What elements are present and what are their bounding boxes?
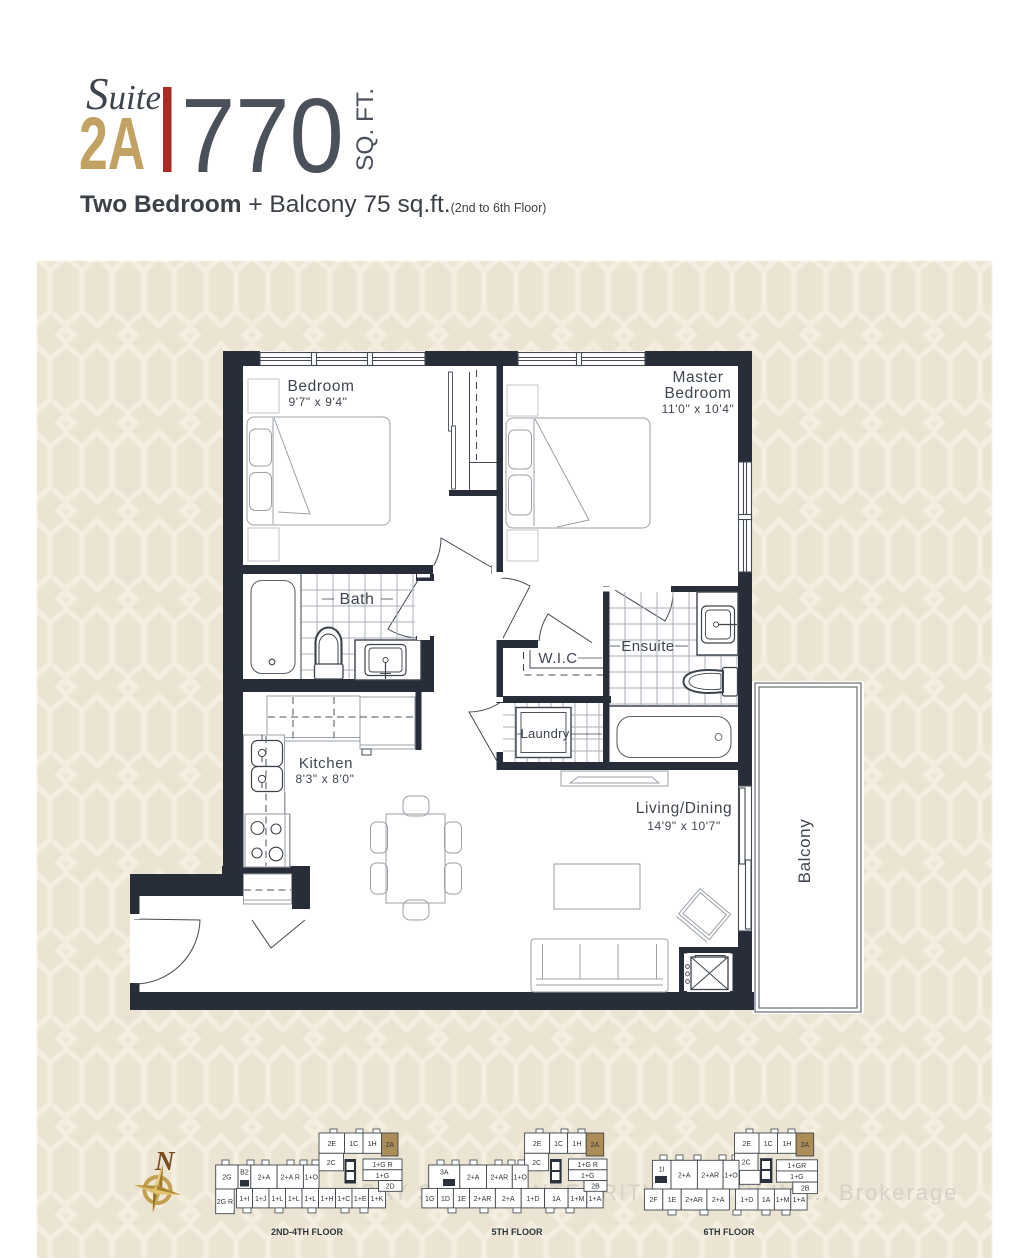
svg-text:2+A: 2+A [258,1175,271,1182]
svg-text:2C: 2C [532,1160,541,1167]
svg-text:1E: 1E [457,1196,466,1203]
svg-text:1C: 1C [554,1141,563,1148]
svg-text:1H: 1H [368,1141,377,1148]
svg-text:1+G: 1+G [376,1173,389,1180]
svg-text:W.I.C: W.I.C [538,650,577,667]
svg-text:2+A: 2+A [678,1172,691,1179]
svg-text:Ensuite: Ensuite [621,638,675,655]
svg-text:6TH FLOOR: 6TH FLOOR [704,1227,755,1237]
svg-text:1+GR: 1+GR [788,1163,806,1170]
svg-text:1+J: 1+J [255,1196,266,1203]
svg-text:Kitchen: Kitchen [299,755,353,772]
svg-text:1+M: 1+M [776,1197,790,1204]
svg-text:11'0" x 10'4": 11'0" x 10'4" [662,402,735,416]
svg-text:1+L: 1+L [304,1196,316,1203]
svg-text:1C: 1C [764,1141,773,1148]
svg-text:1+L: 1+L [271,1196,283,1203]
svg-text:Master: Master [673,369,724,386]
svg-text:2C: 2C [327,1160,336,1167]
svg-text:2E: 2E [327,1141,336,1148]
svg-text:1+O: 1+O [724,1172,738,1179]
svg-text:2D: 2D [386,1184,395,1191]
svg-text:2E: 2E [533,1141,542,1148]
svg-text:770: 770 [181,76,344,195]
svg-text:2A: 2A [385,1142,394,1149]
svg-text:2G: 2G [222,1175,231,1182]
svg-text:Living/Dining: Living/Dining [636,800,733,817]
svg-text:Bedroom: Bedroom [664,385,731,402]
svg-text:1+K: 1+K [371,1196,384,1203]
svg-text:1C: 1C [349,1141,358,1148]
svg-text:2+A R: 2+A R [281,1175,300,1182]
svg-text:2A: 2A [591,1142,600,1149]
svg-text:N: N [154,1146,176,1176]
svg-text:2F: 2F [650,1197,658,1204]
svg-text:1G: 1G [425,1196,434,1203]
svg-text:1H: 1H [572,1141,581,1148]
svg-text:1A: 1A [552,1196,561,1203]
svg-text:1+C: 1+C [337,1196,350,1203]
svg-text:2+A: 2+A [502,1196,515,1203]
svg-text:9'7" x 9'4": 9'7" x 9'4" [288,395,347,409]
svg-text:1+I: 1+I [240,1196,250,1203]
svg-text:8'3" x 8'0": 8'3" x 8'0" [295,772,354,786]
svg-text:2+A: 2+A [712,1197,725,1204]
svg-text:5TH FLOOR: 5TH FLOOR [492,1227,543,1237]
svg-text:Laundry: Laundry [520,726,569,741]
svg-text:B2: B2 [240,1170,249,1177]
svg-text:1+A: 1+A [589,1196,602,1203]
svg-text:1+O: 1+O [304,1175,318,1182]
svg-text:14'9" x 10'7": 14'9" x 10'7" [647,819,721,833]
svg-text:Bath: Bath [340,591,375,608]
svg-text:2+AR: 2+AR [474,1196,492,1203]
svg-text:1+D: 1+D [526,1196,539,1203]
svg-text:2B: 2B [801,1186,810,1193]
svg-text:2C: 2C [742,1160,751,1167]
svg-text:2+AR: 2+AR [685,1197,703,1204]
svg-text:2+AR: 2+AR [491,1175,509,1182]
svg-text:1+D: 1+D [740,1197,753,1204]
svg-text:1+A: 1+A [793,1197,806,1204]
svg-text:2A: 2A [801,1142,810,1149]
svg-text:2+AR: 2+AR [701,1172,719,1179]
svg-text:1+G: 1+G [581,1173,594,1180]
svg-text:1H: 1H [782,1141,791,1148]
svg-text:2B: 2B [591,1184,600,1191]
svg-text:2G R: 2G R [217,1199,233,1206]
svg-text:1+E: 1+E [354,1196,367,1203]
svg-text:1+G R: 1+G R [578,1162,598,1169]
svg-text:1D: 1D [441,1196,450,1203]
svg-text:1+G: 1+G [790,1174,803,1181]
svg-text:1E: 1E [668,1197,677,1204]
svg-text:1+G R: 1+G R [372,1162,392,1169]
svg-text:Balcony: Balcony [795,819,814,884]
svg-text:3A: 3A [440,1170,449,1177]
svg-text:Bedroom: Bedroom [287,378,354,395]
svg-text:2A: 2A [79,102,145,185]
svg-text:1+H: 1+H [320,1196,333,1203]
svg-text:1A: 1A [762,1197,771,1204]
svg-text:SQ. FT.: SQ. FT. [352,88,379,171]
svg-text:1+M: 1+M [571,1196,585,1203]
svg-text:1+O: 1+O [513,1175,527,1182]
svg-text:1I: 1I [659,1166,665,1173]
svg-text:2ND-4TH FLOOR: 2ND-4TH FLOOR [271,1227,344,1237]
svg-text:1+L: 1+L [288,1196,300,1203]
svg-text:2+A: 2+A [467,1175,480,1182]
svg-text:2E: 2E [742,1141,751,1148]
